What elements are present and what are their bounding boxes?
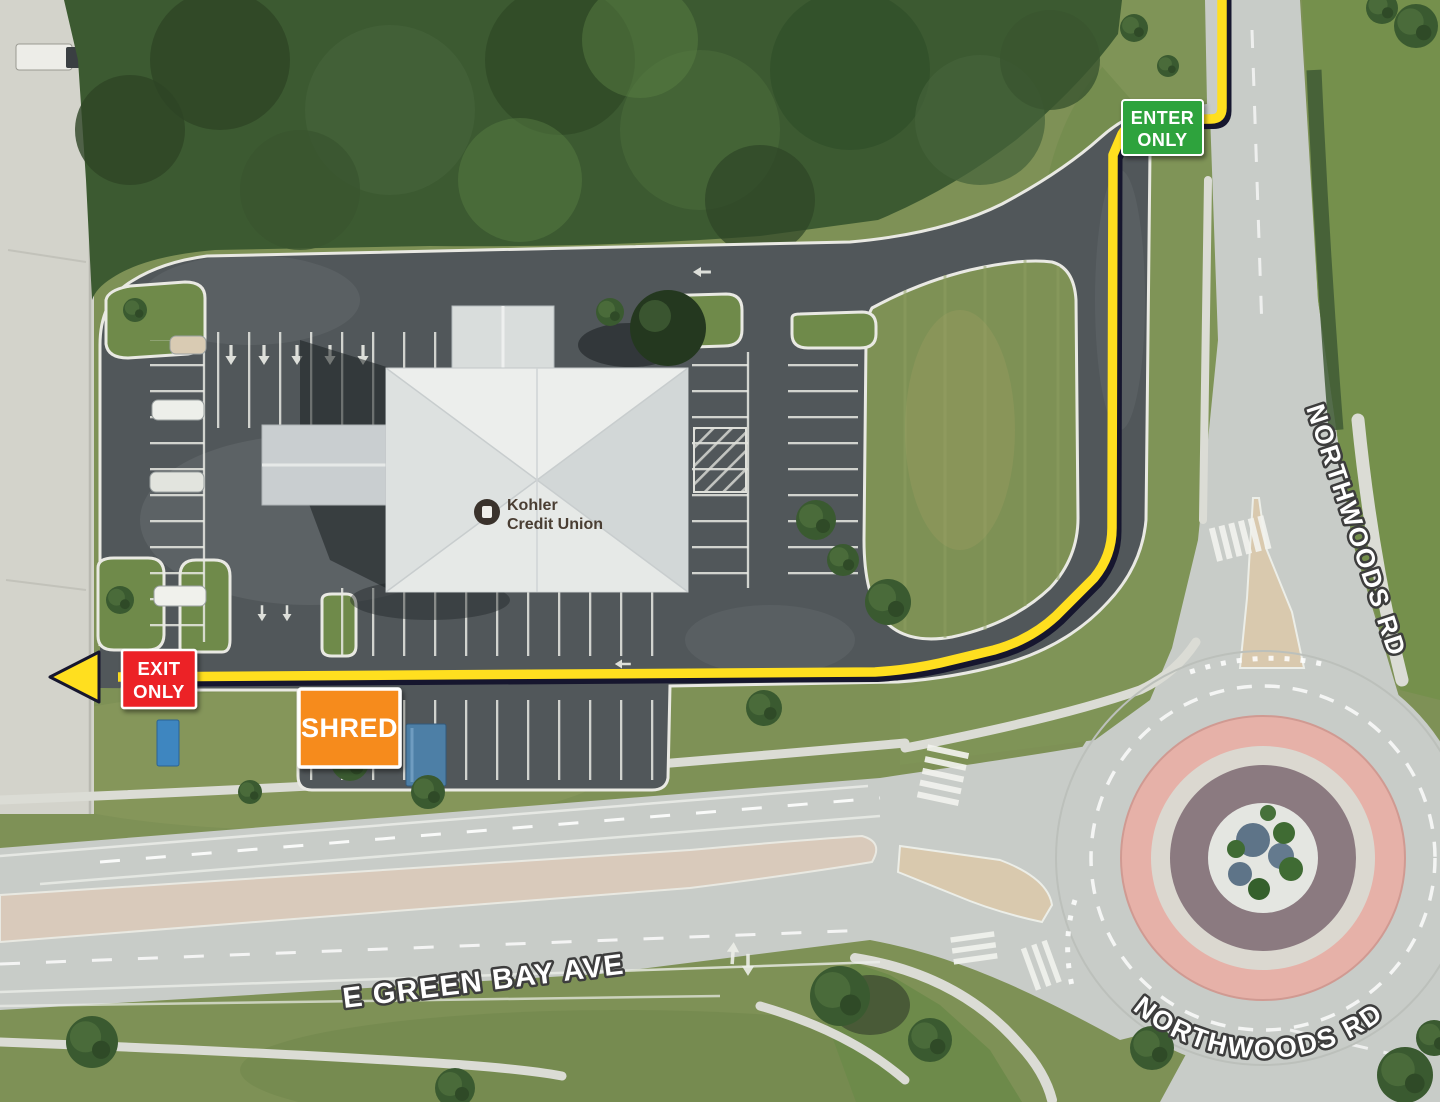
building-name-line2: Credit Union [507,516,603,533]
building-main-roof [386,368,688,592]
shred-sign-label: SHRED [301,713,398,743]
parked-truck [16,44,72,70]
building-name-line1: Kohler [507,497,558,514]
conifer-tree [630,290,706,366]
shred-sign: SHRED [299,689,400,767]
enter-sign-line1: ENTER [1131,108,1195,128]
aerial-map: Kohler Credit Union ENTER ONLY EXIT [0,0,1440,1102]
monument-sign [157,720,179,766]
aerial-map-canvas: Kohler Credit Union ENTER ONLY EXIT [0,0,1440,1102]
exit-sign-line2: ONLY [133,681,185,702]
enter-only-sign: ENTER ONLY [1122,100,1203,155]
exit-only-sign: EXIT ONLY [122,650,196,708]
exit-sign-line1: EXIT [137,658,180,679]
enter-sign-line2: ONLY [1137,130,1187,150]
no-parking-hatch [694,428,746,492]
